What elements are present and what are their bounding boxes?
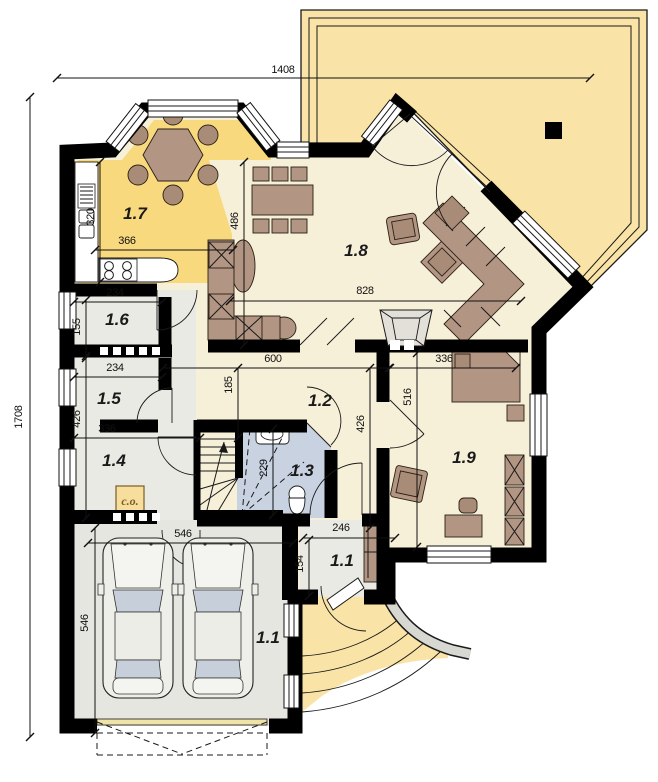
room-label: 1.2 [308,391,332,410]
kitchen-stove [98,258,178,282]
dimension: 1708 [13,93,34,741]
dimension-label: 185 [223,376,235,394]
room-label: 1.1 [256,628,280,647]
fireplace [380,310,432,350]
co-label: c.o. [121,494,138,508]
dimension-label: 229 [258,459,270,477]
dimension-label: 234 [106,287,124,299]
room-label: 1.5 [97,389,121,408]
living-table-set [252,167,313,233]
garage-east-window-1 [284,604,299,637]
room-label: 1.3 [290,461,314,480]
dimension-label: 154 [294,555,306,573]
dimension-label: 320 [85,208,97,226]
floor-garage [67,520,295,726]
flue-vent [404,340,414,350]
floor-plan-page: c.o. [0,0,658,782]
room-label: 1.7 [123,204,148,223]
car [98,538,178,698]
floor-plan-drawing: c.o. [0,0,658,782]
bedroom-south-window [427,546,491,563]
dimension-label: 1708 [13,405,25,428]
armchair [386,213,420,246]
garage-door [97,719,267,755]
wardrobe [505,455,524,545]
dimension-label: 426 [355,415,367,433]
desk-chair [459,498,477,513]
dimension-label: 246 [332,522,350,534]
bedroom-armchair [390,465,428,503]
bed [452,350,520,402]
room-label: 1.4 [102,451,126,470]
room-label: 1.1 [330,551,354,570]
room-label: 1.9 [452,448,476,467]
dimension-label: 546 [79,614,91,632]
west-window-3 [59,449,76,486]
bay-window-top [148,100,238,117]
west-window-2 [59,369,76,406]
flue-vent [390,340,400,350]
car [178,538,258,698]
dimension-label: 486 [229,212,241,230]
living-top-window [277,142,309,158]
dimension-label: 234 [106,362,124,374]
dimension-label: 546 [174,528,192,540]
chimney-square [545,122,562,139]
dimension-label: 155 [71,318,83,336]
dimension-label: 1408 [271,64,294,76]
nightstand [507,405,524,421]
desk [445,515,482,537]
toilet [289,486,305,514]
dimension-label: 426 [71,410,83,428]
room-label: 1.8 [344,241,368,260]
dimension-label: 828 [356,285,374,297]
dimension-label: 600 [264,353,282,365]
boiler-box: c.o. [116,486,144,514]
dimension-label: 366 [118,235,136,247]
entrance-porch [302,586,470,712]
room-label: 1.6 [105,310,129,329]
garage-east-window-2 [284,675,299,708]
dimension-label: 336 [98,423,116,435]
bedroom-east-window [530,394,547,456]
dimension-label: 516 [402,388,414,406]
dimension-label: 336 [435,353,453,365]
